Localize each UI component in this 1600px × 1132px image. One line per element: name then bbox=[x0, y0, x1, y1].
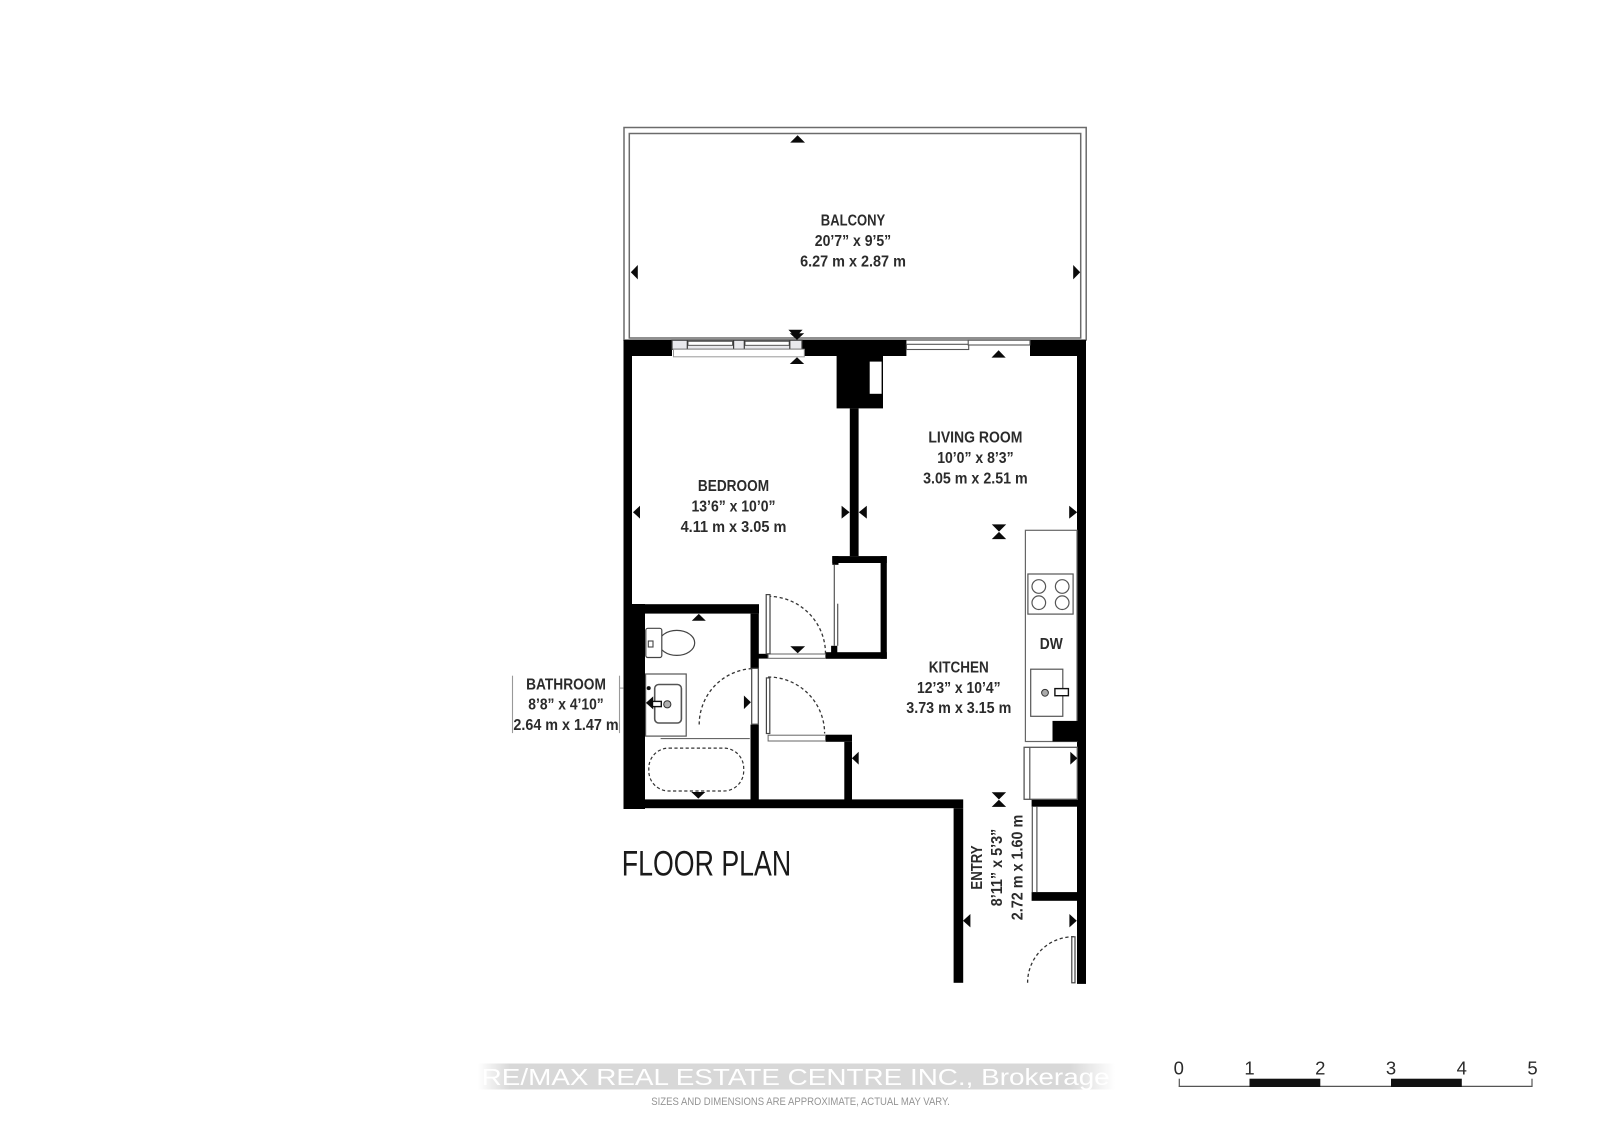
svg-text:RE/MAX REAL ESTATE CENTRE INC.: RE/MAX REAL ESTATE CENTRE INC., Brokerag… bbox=[482, 1064, 1110, 1090]
svg-text:LIVING ROOM: LIVING ROOM bbox=[928, 430, 1022, 447]
svg-text:8’11” x 5’3”: 8’11” x 5’3” bbox=[989, 829, 1006, 907]
svg-text:BALCONY: BALCONY bbox=[821, 213, 886, 230]
svg-text:2.72 m x 1.60 m: 2.72 m x 1.60 m bbox=[1010, 815, 1027, 921]
svg-text:0: 0 bbox=[1174, 1058, 1184, 1079]
svg-text:BATHROOM: BATHROOM bbox=[526, 676, 606, 693]
svg-text:3.05 m x 2.51 m: 3.05 m x 2.51 m bbox=[923, 471, 1028, 488]
svg-text:6.27 m x 2.87 m: 6.27 m x 2.87 m bbox=[800, 253, 906, 270]
svg-text:13’6” x 10’0”: 13’6” x 10’0” bbox=[692, 499, 776, 516]
svg-text:8’8” x 4’10”: 8’8” x 4’10” bbox=[528, 697, 603, 714]
svg-text:3.73 m x 3.15 m: 3.73 m x 3.15 m bbox=[906, 700, 1011, 717]
svg-text:20’7” x 9’5”: 20’7” x 9’5” bbox=[815, 233, 891, 250]
svg-text:BEDROOM: BEDROOM bbox=[698, 478, 769, 495]
svg-text:SIZES AND DIMENSIONS ARE APPRO: SIZES AND DIMENSIONS ARE APPROXIMATE, AC… bbox=[651, 1096, 950, 1108]
svg-text:KITCHEN: KITCHEN bbox=[929, 659, 989, 676]
svg-text:FLOOR PLAN: FLOOR PLAN bbox=[622, 844, 791, 884]
svg-text:2.64 m x 1.47 m: 2.64 m x 1.47 m bbox=[513, 717, 618, 734]
svg-text:3: 3 bbox=[1386, 1058, 1396, 1079]
svg-text:5: 5 bbox=[1527, 1058, 1537, 1079]
svg-text:12’3” x 10’4”: 12’3” x 10’4” bbox=[917, 680, 1001, 697]
svg-text:4: 4 bbox=[1457, 1058, 1467, 1079]
svg-text:1: 1 bbox=[1244, 1058, 1254, 1079]
svg-text:ENTRY: ENTRY bbox=[969, 845, 986, 889]
svg-text:DW: DW bbox=[1040, 636, 1064, 653]
svg-text:2: 2 bbox=[1315, 1058, 1325, 1079]
svg-text:4.11 m x 3.05 m: 4.11 m x 3.05 m bbox=[681, 519, 787, 536]
svg-text:10’0” x 8’3”: 10’0” x 8’3” bbox=[937, 450, 1013, 467]
